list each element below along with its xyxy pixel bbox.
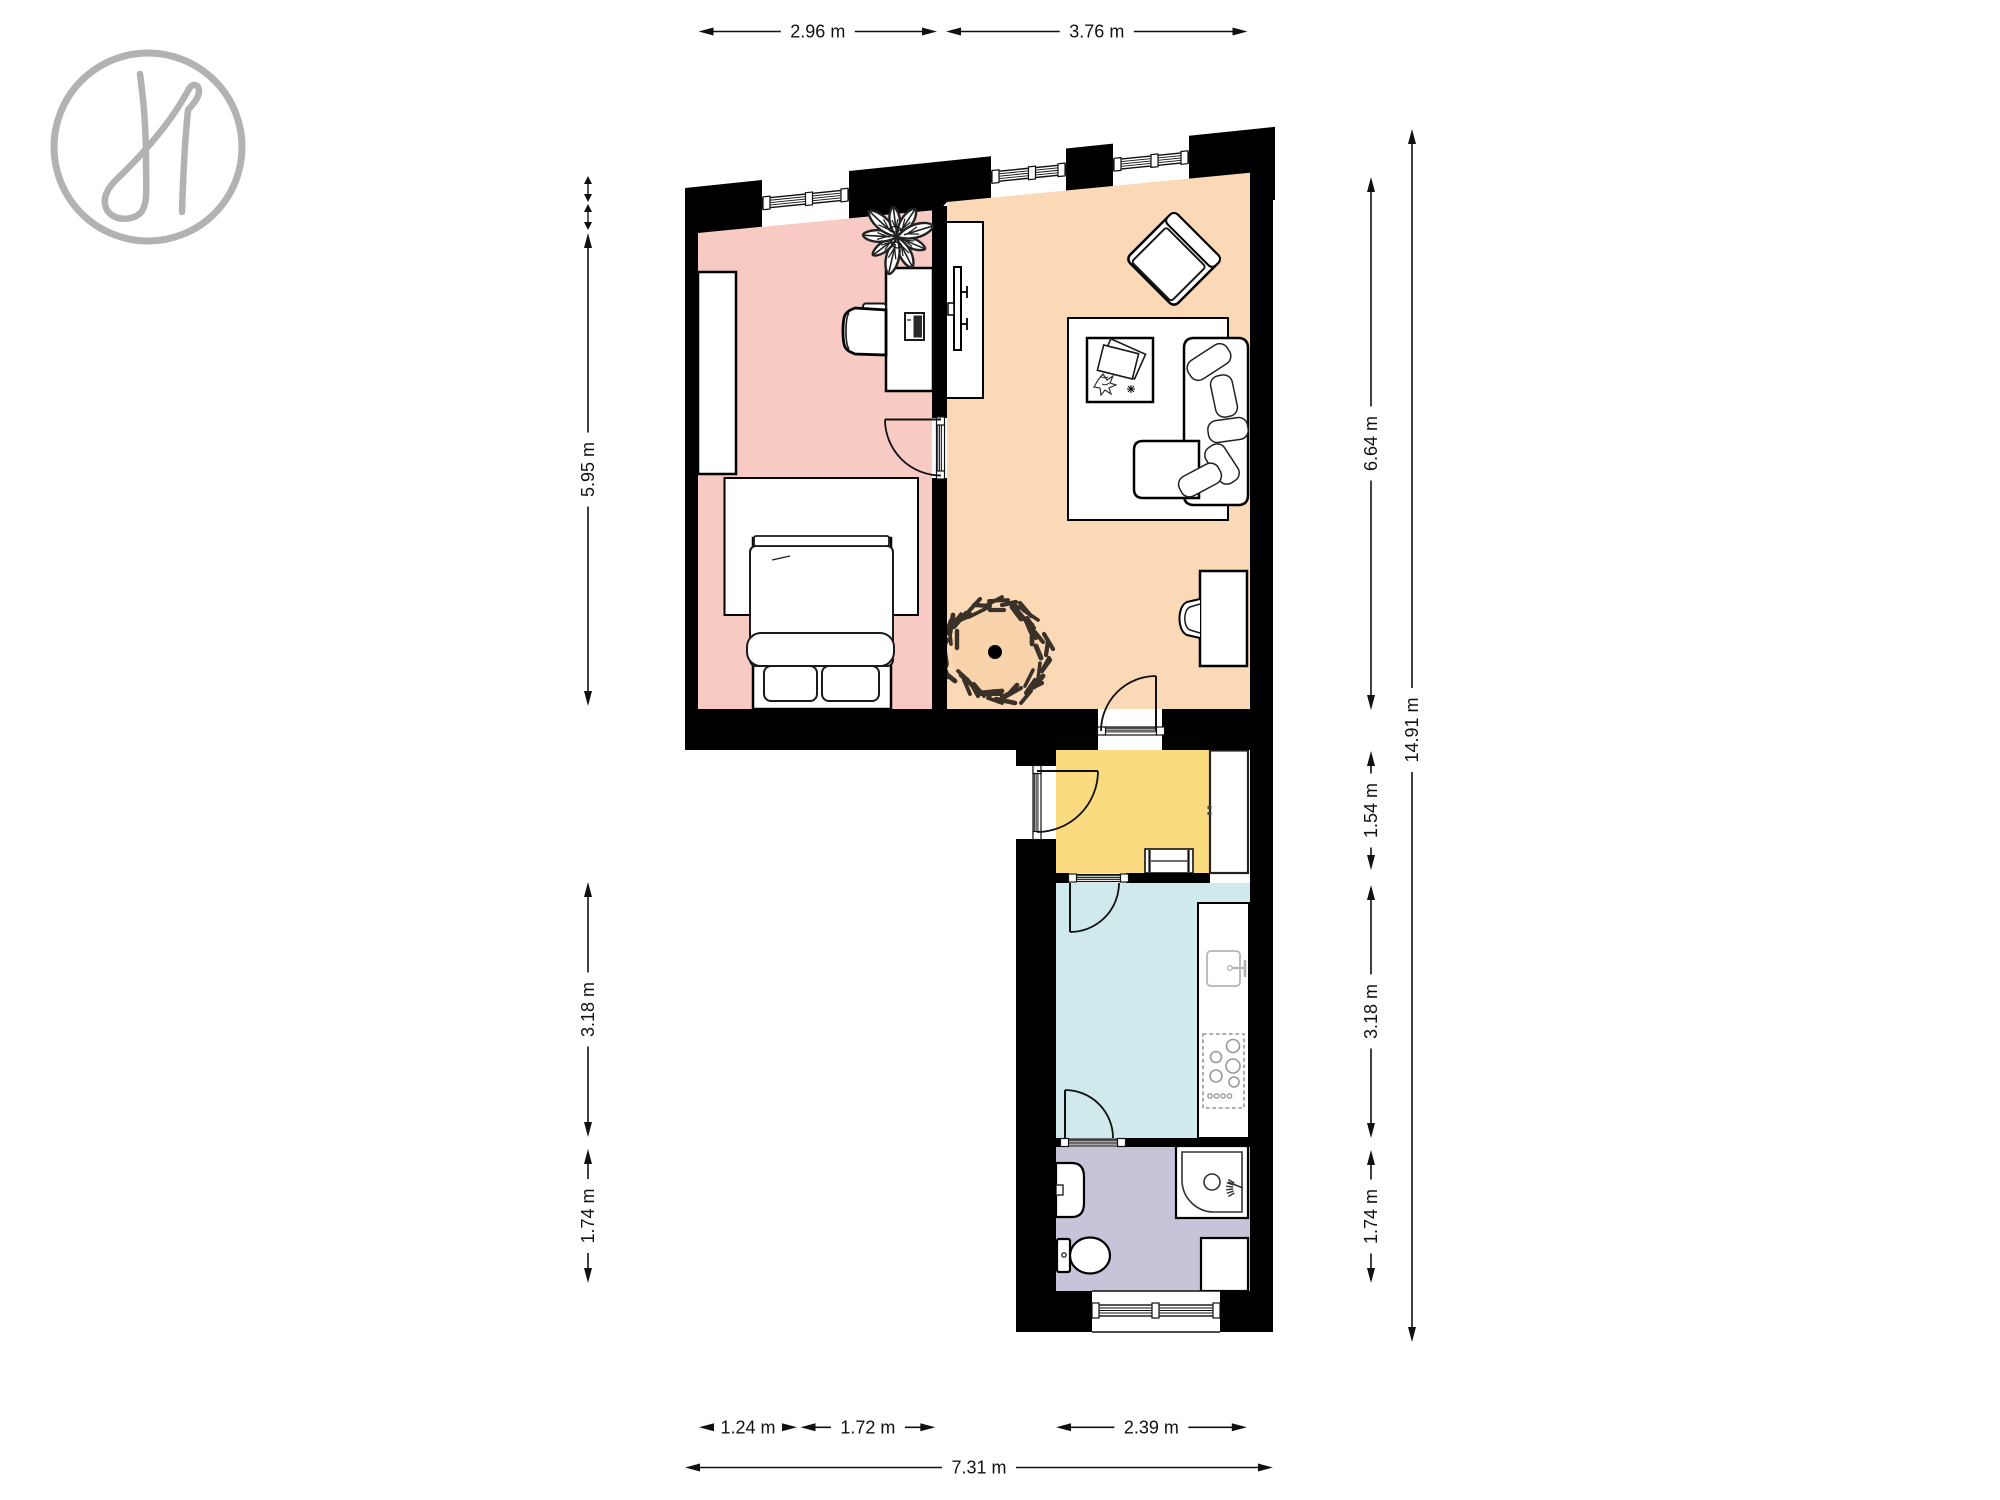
svg-text:1.74 m: 1.74 m (1361, 1189, 1381, 1244)
svg-text:1.72 m: 1.72 m (840, 1418, 895, 1438)
svg-text:3.18 m: 3.18 m (1361, 984, 1381, 1039)
svg-text:6.64 m: 6.64 m (1361, 416, 1381, 471)
svg-text:5.95 m: 5.95 m (578, 442, 598, 497)
svg-text:2.39 m: 2.39 m (1124, 1418, 1179, 1438)
svg-text:3.76 m: 3.76 m (1069, 22, 1124, 42)
svg-text:1.54 m: 1.54 m (1361, 783, 1381, 838)
svg-text:1.24 m: 1.24 m (720, 1418, 775, 1438)
svg-text:2.96 m: 2.96 m (790, 22, 845, 42)
svg-text:7.31 m: 7.31 m (951, 1458, 1006, 1478)
svg-text:1.74 m: 1.74 m (578, 1188, 598, 1243)
svg-text:3.18 m: 3.18 m (578, 982, 598, 1037)
svg-text:14.91 m: 14.91 m (1402, 697, 1422, 762)
